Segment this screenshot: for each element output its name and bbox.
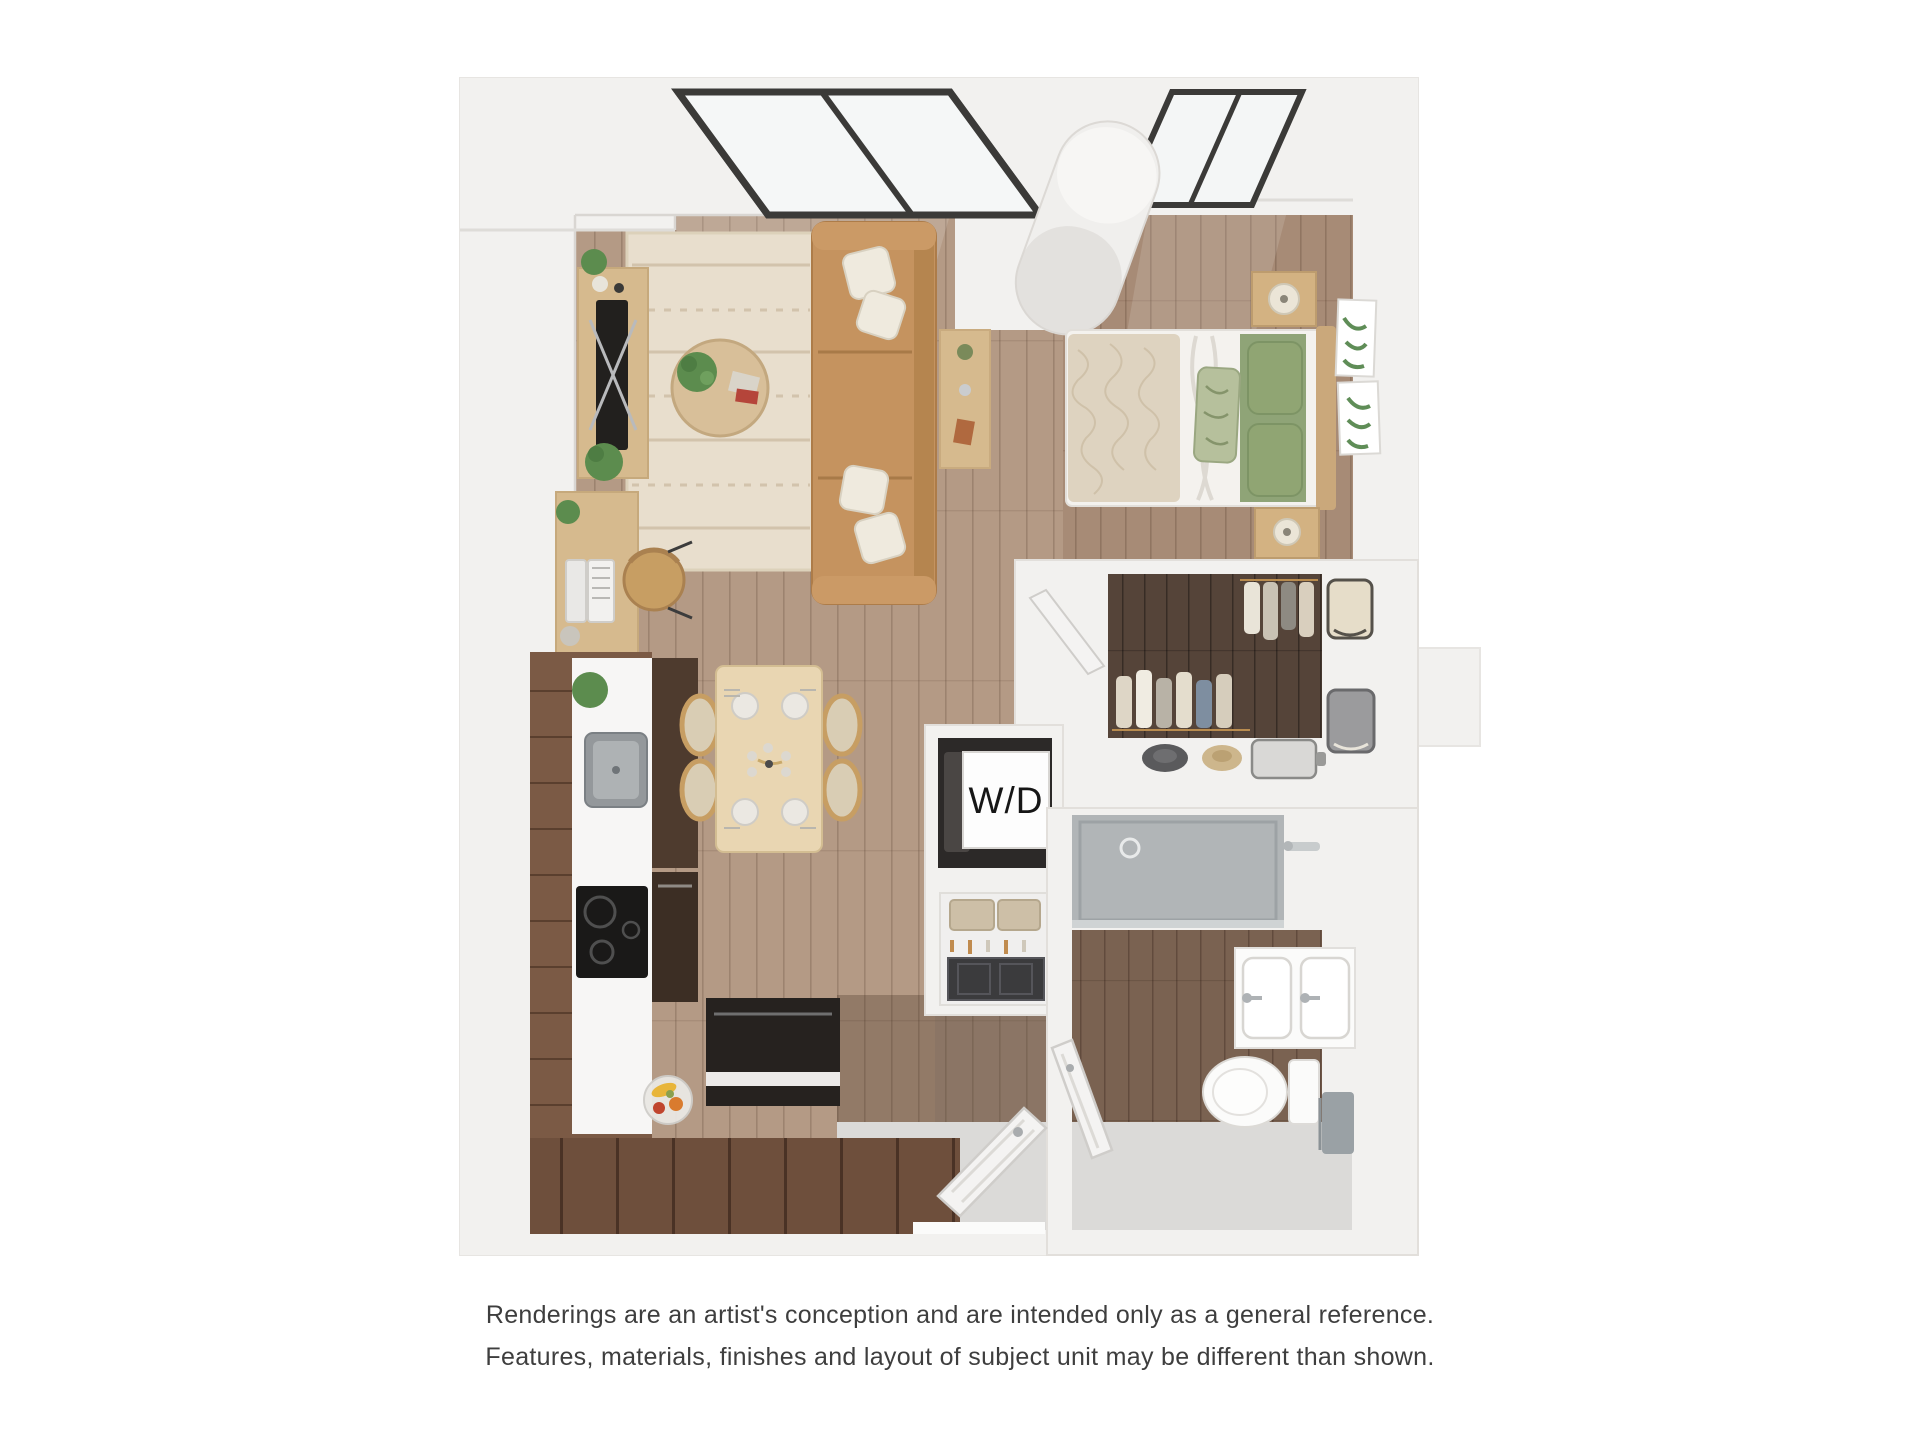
bed-pillow <box>1248 342 1302 414</box>
plant-on-console <box>581 249 607 275</box>
utility-closets: W/D <box>925 725 1063 1015</box>
towel-rack <box>1320 1092 1354 1154</box>
nightstand-top <box>1252 272 1316 326</box>
door-knob <box>1013 1127 1023 1137</box>
vanity <box>1235 948 1355 1048</box>
linen-closet <box>940 893 1052 1005</box>
door-knob <box>1066 1064 1074 1072</box>
headboard <box>1316 326 1336 510</box>
disclaimer-line-2: Features, materials, finishes and layout… <box>0 1336 1920 1378</box>
dining-table <box>716 666 822 852</box>
bed <box>1066 326 1336 510</box>
tv-console <box>578 249 648 481</box>
potted-plant <box>677 352 717 392</box>
bathroom-gray-floor <box>1072 1122 1352 1230</box>
washer-dryer-closet: W/D <box>938 738 1052 868</box>
walk-in-closet <box>1015 560 1418 808</box>
kitchen-island <box>706 998 840 1106</box>
counter-plant <box>572 672 608 708</box>
laptop-keyboard <box>588 560 614 622</box>
duvet <box>1068 334 1180 502</box>
kitchen-platform <box>530 1138 960 1234</box>
toilet <box>1203 1057 1319 1127</box>
nightstand-bottom <box>1255 508 1319 558</box>
oven <box>652 872 698 1002</box>
disclaimer: Renderings are an artist's conception an… <box>0 1294 1920 1378</box>
entry-threshold <box>913 1222 1045 1234</box>
coffee-table <box>672 340 768 436</box>
storage-box <box>998 900 1040 930</box>
shower <box>1072 815 1320 928</box>
fruit-bowl <box>644 1076 692 1124</box>
wall-bump-right <box>1418 648 1480 746</box>
cooktop <box>576 886 648 978</box>
suitcase <box>1252 740 1316 778</box>
leaf-pillow <box>1194 367 1241 463</box>
bathroom <box>1047 808 1418 1255</box>
storage-box <box>950 900 994 930</box>
sofa-console-table <box>940 330 990 468</box>
desk-plant <box>556 500 580 524</box>
shower-glass <box>1072 920 1284 928</box>
disclaimer-line-1: Renderings are an artist's conception an… <box>0 1294 1920 1336</box>
bed-pillow <box>1248 424 1302 496</box>
laptop-screen <box>566 560 586 622</box>
sofa <box>812 222 936 604</box>
wd-label: W/D <box>969 780 1044 821</box>
kitchen-sink <box>585 733 647 807</box>
entry-hall-shadow <box>935 1015 1047 1125</box>
floorplan-rendering: W/D <box>0 0 1920 1440</box>
